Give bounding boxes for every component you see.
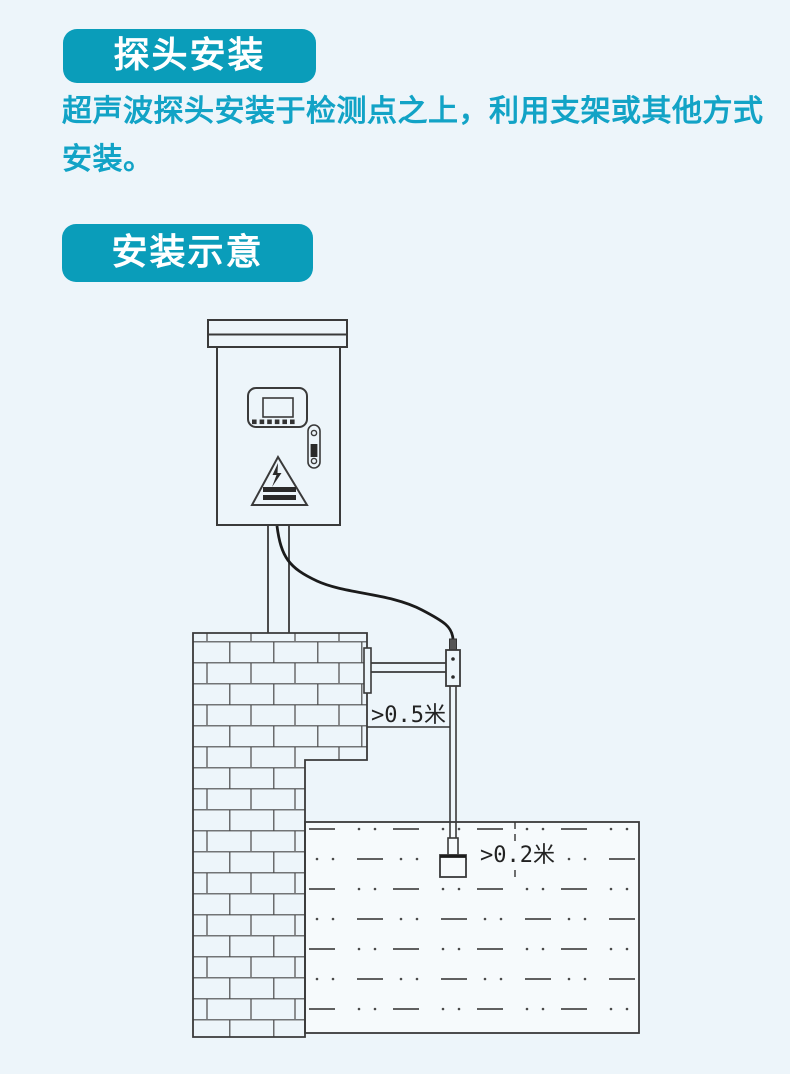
probe-bracket-icon	[364, 639, 460, 693]
display-panel-icon	[248, 388, 307, 427]
section-badge-probe-install: 探头安装	[63, 29, 316, 83]
probe-drop-pole	[450, 686, 456, 838]
section-badge-install-diagram: 安装示意	[62, 224, 313, 282]
display-screen	[263, 398, 293, 417]
wall-offset-dimension: >0.5米	[368, 703, 451, 728]
cable-gland	[450, 639, 457, 650]
installation-diagram: >0.5米 >0.2米	[185, 305, 665, 1045]
water-clearance-dimension-label: >0.2米	[480, 843, 555, 868]
cabinet-cap	[208, 320, 347, 347]
high-voltage-warning-icon	[252, 457, 307, 505]
product-installation-page: 探头安装 超声波探头安装于检测点之上，利用支架或其他方式安装。 安装示意	[0, 0, 790, 1074]
signal-cable-icon	[277, 526, 453, 639]
bracket-arm	[371, 663, 446, 672]
water-body-icon	[305, 822, 639, 1033]
probe-install-description: 超声波探头安装于检测点之上，利用支架或其他方式安装。	[62, 88, 768, 184]
wall-offset-dimension-label: >0.5米	[371, 703, 446, 728]
door-handle-icon	[308, 425, 320, 468]
display-buttons	[252, 420, 295, 425]
control-cabinet-icon	[208, 320, 347, 525]
wall-mount-plate	[364, 648, 371, 693]
